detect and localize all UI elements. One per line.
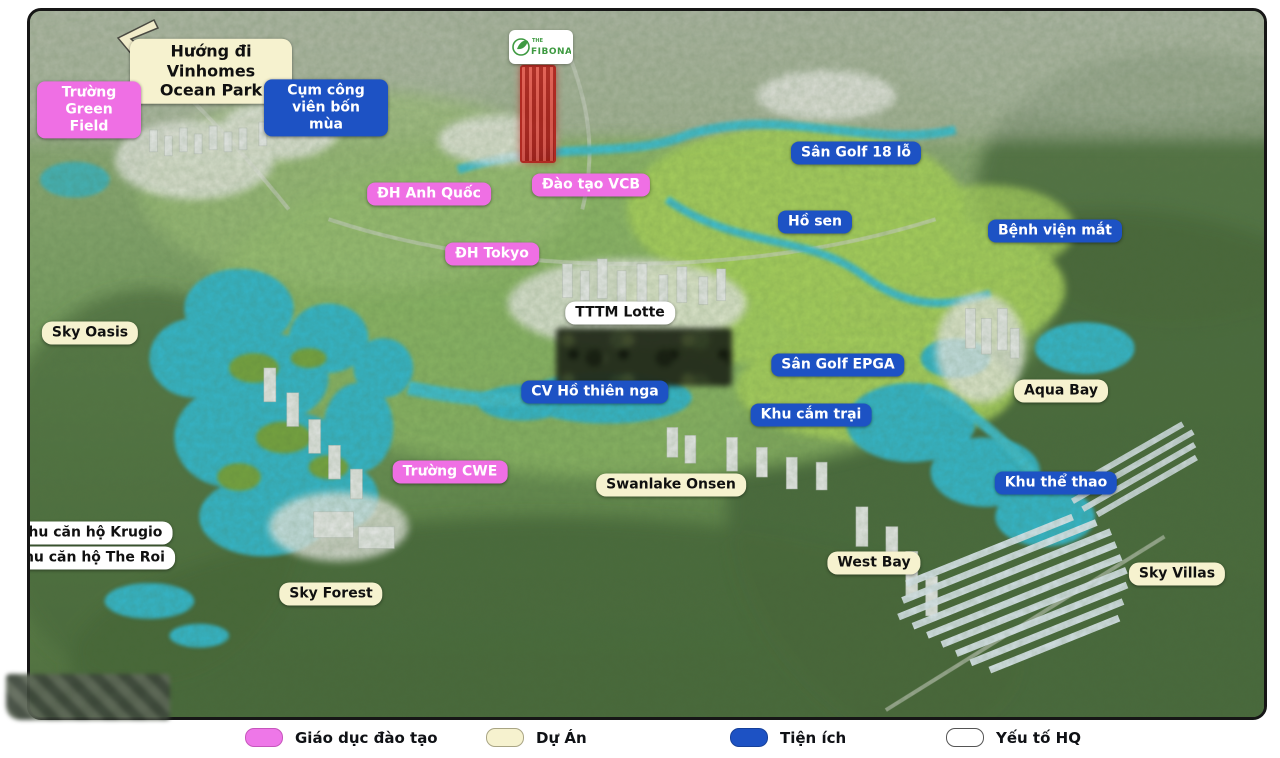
map-label-tttm-lotte: TTTM Lotte xyxy=(565,301,675,324)
blurred-patch-corner xyxy=(6,674,170,720)
legend-label-hq: Yếu tố HQ xyxy=(996,729,1081,747)
legend-item-hq: Yếu tố HQ xyxy=(946,728,1081,747)
map-label-dh-tokyo: ĐH Tokyo xyxy=(445,242,539,265)
legend-label-utility: Tiện ích xyxy=(780,729,846,747)
map-label-khu-cam-trai: Khu cắm trại xyxy=(751,403,872,426)
brand-logo: THE FIBONAN xyxy=(509,30,573,64)
map-label-khu-can-ho-the-roi: Khu căn hộ The Roi xyxy=(27,546,175,569)
map-label-aqua-bay: Aqua Bay xyxy=(1014,379,1108,402)
map-label-dh-anh-quoc: ĐH Anh Quốc xyxy=(367,182,491,205)
legend-swatch-utility xyxy=(730,728,768,747)
legend-swatch-hq xyxy=(946,728,984,747)
map-label-west-bay: West Bay xyxy=(827,551,920,574)
map-label-dao-tao-vcb: Đào tạo VCB xyxy=(532,173,650,196)
leaf-icon: THE FIBONAN xyxy=(511,33,571,61)
legend-label-project: Dự Án xyxy=(536,729,587,747)
map-label-sky-oasis: Sky Oasis xyxy=(42,321,138,344)
map-label-truong-cwe: Trường CWE xyxy=(393,460,508,483)
legend-item-project: Dự Án xyxy=(486,728,587,747)
brand-the: THE xyxy=(532,38,544,44)
legend-swatch-education xyxy=(245,728,283,747)
brand-name: FIBONAN xyxy=(531,47,571,57)
legend-item-education: Giáo dục đào tạo xyxy=(245,728,438,747)
map-label-ho-sen: Hồ sen xyxy=(778,210,852,233)
map-label-san-golf-epga: Sân Golf EPGA xyxy=(771,353,904,376)
map-label-sky-villas: Sky Villas xyxy=(1129,562,1225,585)
map-label-cum-cong-vien-bon-mua: Cụm công viên bốn mùa xyxy=(264,79,388,136)
legend-item-utility: Tiện ích xyxy=(730,728,846,747)
map-label-benh-vien-mat: Bệnh viện mắt xyxy=(988,219,1122,242)
blurred-patch-center xyxy=(556,328,732,386)
masterplan-map: THE FIBONAN Hướng đi Vinhomes Ocean Park… xyxy=(27,8,1267,720)
map-label-sky-forest: Sky Forest xyxy=(279,582,382,605)
map-label-khu-can-ho-krugio: Khu căn hộ Krugio xyxy=(27,521,172,544)
map-label-swanlake-onsen: Swanlake Onsen xyxy=(596,473,746,496)
legend-label-education: Giáo dục đào tạo xyxy=(295,729,438,747)
map-label-khu-the-thao: Khu thể thao xyxy=(995,471,1117,494)
map-label-truong-green-field: Trường Green Field xyxy=(37,81,141,138)
legend-swatch-project xyxy=(486,728,524,747)
map-label-san-golf-18-lo: Sân Golf 18 lỗ xyxy=(791,141,921,164)
red-tower-highlight xyxy=(520,65,556,163)
map-label-cv-ho-thien-nga: CV Hồ thiên nga xyxy=(521,380,668,403)
